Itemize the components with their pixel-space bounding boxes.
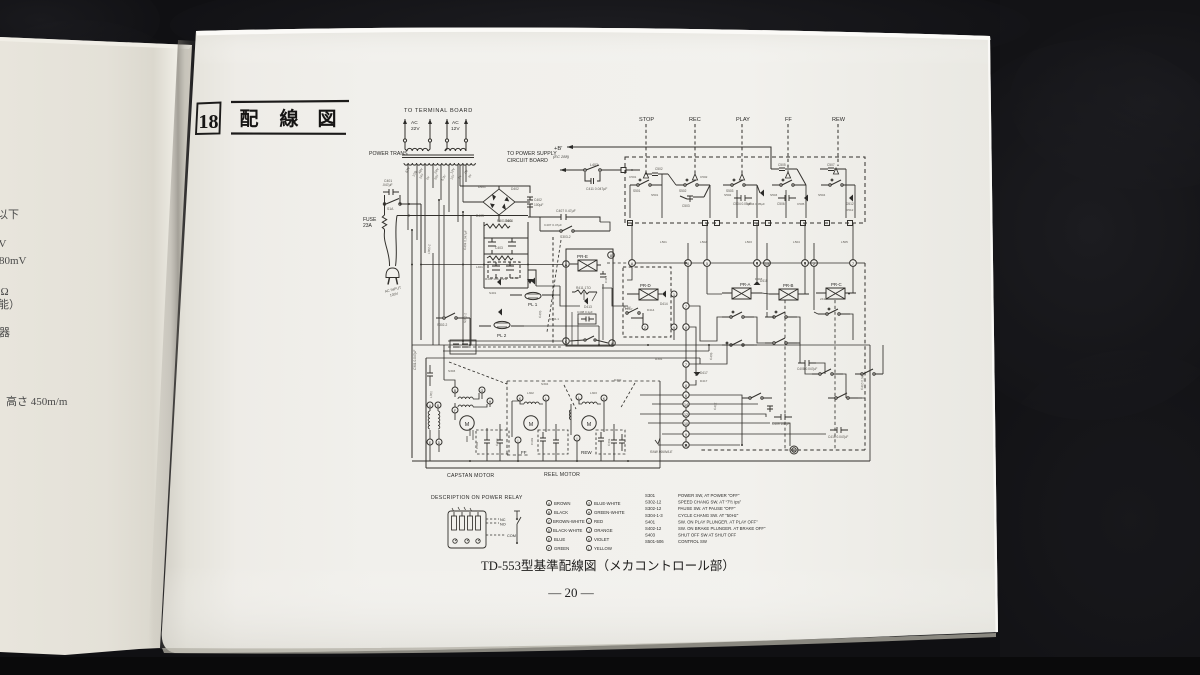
svg-text:配: 配 (239, 108, 258, 130)
svg-text:S401: S401 (489, 291, 497, 295)
svg-text:I: I (577, 437, 578, 441)
svg-text:C503: C503 (682, 204, 690, 208)
svg-text:7: 7 (685, 305, 687, 309)
svg-text:BLUE: BLUE (554, 537, 565, 542)
svg-text:C301 0.047µF: C301 0.047µF (413, 350, 417, 370)
svg-text:F: F (454, 409, 456, 413)
svg-text:S502: S502 (724, 193, 732, 197)
svg-text:L401: L401 (476, 265, 483, 269)
svg-text:6: 6 (687, 262, 689, 266)
svg-text:D512: D512 (846, 202, 854, 206)
svg-text:BROWN: BROWN (554, 501, 570, 506)
svg-text:SPEED CHANG SW. AT “7½ ips: SPEED CHANG SW. AT “7½ ips” (678, 500, 742, 505)
svg-text:L505: L505 (841, 240, 848, 244)
svg-text:AC: AC (411, 120, 418, 126)
svg-text:REEL MOTOR: REEL MOTOR (544, 472, 580, 478)
svg-text:PL 1: PL 1 (528, 302, 538, 307)
svg-text:8: 8 (610, 254, 612, 258)
svg-text:C505: C505 (778, 163, 786, 167)
svg-text:S503: S503 (770, 193, 778, 197)
svg-text:能）: 能） (0, 297, 20, 311)
svg-text:S402-12: S402-12 (645, 526, 662, 531)
svg-text:C502: C502 (700, 175, 708, 179)
svg-text:PAUSE SW. AT PAUSE “OFF”: PAUSE SW. AT PAUSE “OFF” (678, 506, 736, 511)
svg-text:9: 9 (673, 326, 675, 330)
svg-text:C407 0.47µF: C407 0.47µF (544, 223, 562, 227)
svg-text:PR-E: PR-E (577, 254, 588, 259)
svg-text:mV: mV (0, 238, 7, 250)
svg-text:5: 5 (706, 262, 708, 266)
svg-text:D407: D407 (512, 276, 520, 280)
svg-text:D402: D402 (511, 187, 519, 191)
svg-text:S301: S301 (645, 493, 656, 498)
svg-text:D302: D302 (614, 378, 622, 382)
svg-text:D417: D417 (700, 371, 708, 375)
svg-text:S1A: S1A (387, 207, 394, 211)
svg-text:C501: C501 (629, 175, 637, 179)
svg-text:G: G (481, 389, 484, 393)
svg-text:— 20 —: — 20 — (547, 585, 595, 600)
svg-text:S504: S504 (818, 193, 826, 197)
svg-text:図: 図 (317, 108, 336, 130)
svg-text:10: 10 (684, 422, 688, 426)
svg-text:D413: D413 (584, 305, 592, 309)
svg-text:8: 8 (685, 384, 687, 388)
svg-text:NO: NO (500, 523, 506, 527)
svg-text:SHUT OFF SW AT SHUT OFF: SHUT OFF SW AT SHUT OFF (678, 533, 737, 538)
svg-text:YELLOW: YELLOW (594, 546, 613, 551)
svg-text:C413: C413 (604, 275, 608, 283)
svg-text:PLAY: PLAY (625, 307, 633, 311)
svg-text:L: L (588, 547, 590, 551)
svg-text:POWER TRANS: POWER TRANS (369, 151, 408, 157)
svg-text:S302-12: S302-12 (645, 506, 662, 511)
svg-text:C405: C405 (538, 310, 542, 318)
svg-text:S501: S501 (651, 193, 659, 197)
svg-text:C302: C302 (475, 441, 479, 449)
svg-text:C506: C506 (777, 202, 785, 206)
svg-text:L: L (578, 396, 580, 400)
svg-text:R411 17Ω: R411 17Ω (576, 286, 591, 290)
svg-text:C304: C304 (607, 438, 611, 446)
svg-text:18: 18 (199, 111, 219, 133)
svg-text:S304: S304 (541, 382, 549, 386)
svg-text:.047µF: .047µF (382, 183, 393, 187)
svg-text:S501: S501 (633, 189, 641, 193)
svg-text:DESCRIPTION ON POWER RELAY: DESCRIPTION ON POWER RELAY (431, 495, 523, 501)
svg-text:S303-2: S303-2 (560, 235, 571, 239)
svg-text:C402: C402 (534, 198, 542, 202)
svg-text:C407 0.47µF: C407 0.47µF (556, 209, 576, 213)
svg-text:12V: 12V (451, 126, 460, 132)
svg-text:R301: R301 (655, 357, 663, 361)
svg-text:FF: FF (521, 450, 527, 455)
svg-text:線: 線 (279, 107, 298, 130)
svg-text:C410 0.047: C410 0.047 (860, 374, 865, 390)
svg-text:I: I (518, 439, 519, 443)
svg-text:S303: S303 (448, 369, 456, 373)
svg-text:C303: C303 (530, 437, 534, 445)
svg-text:+B′: +B′ (554, 146, 562, 152)
svg-text:R404 100–1/2W: R404 100–1/2W (485, 277, 507, 281)
svg-text:D415: D415 (755, 277, 763, 281)
svg-text:22V: 22V (411, 126, 420, 132)
svg-text:REW: REW (832, 117, 846, 123)
svg-text:STOP: STOP (639, 117, 654, 123)
svg-text:REC: REC (689, 117, 701, 123)
svg-text:6: 6 (685, 394, 687, 398)
svg-text:15: 15 (765, 262, 769, 266)
svg-text:S302-2: S302-2 (437, 323, 448, 327)
svg-text:S502: S502 (679, 189, 687, 193)
svg-text:以下: 以下 (0, 209, 19, 221)
svg-text:POWER SW, AT POWER “OFF”: POWER SW, AT POWER “OFF” (678, 493, 740, 498)
svg-text:L502: L502 (700, 240, 707, 244)
svg-text:23A: 23A (363, 223, 373, 229)
svg-text:D403: D403 (476, 214, 484, 218)
svg-text:C406: C406 (709, 352, 713, 360)
svg-text:高さ 450m/m: 高さ 450m/m (6, 394, 68, 408)
svg-text:C410 0.047µF: C410 0.047µF (828, 435, 848, 439)
svg-text:S302-12: S302-12 (645, 500, 662, 505)
svg-text:S501-506: S501-506 (645, 539, 664, 544)
svg-text:CIRCUIT BOARD: CIRCUIT BOARD (507, 158, 548, 164)
svg-text:SW. ON BRAKE PLUNGER. A: SW. ON BRAKE PLUNGER. AT BRAKE OFF” (678, 526, 766, 531)
svg-text:J: J (588, 529, 590, 533)
svg-text:RAW MAIN/LE: RAW MAIN/LE (650, 450, 673, 454)
svg-text:L: L (545, 397, 547, 401)
svg-text:PR-C: PR-C (831, 282, 842, 287)
svg-text:2411: 2411 (820, 297, 827, 301)
svg-text:TO TERMINAL BOARD: TO TERMINAL BOARD (404, 108, 473, 114)
svg-text:C507: C507 (827, 163, 835, 167)
svg-text:C505: C505 (797, 202, 805, 206)
svg-text:12: 12 (684, 413, 688, 417)
svg-text:BROWN-WHITE: BROWN-WHITE (553, 519, 585, 524)
svg-text:D417: D417 (700, 379, 708, 383)
svg-text:COM: COM (507, 534, 516, 538)
svg-text:1: 1 (673, 293, 675, 297)
svg-text:R401 56Ω: R401 56Ω (497, 219, 512, 223)
svg-text:Ω: Ω (1, 286, 9, 298)
svg-text:C502: C502 (655, 167, 663, 171)
svg-text:C303: C303 (495, 438, 499, 446)
svg-text:REW: REW (581, 450, 592, 455)
svg-text:I: I (589, 520, 590, 524)
svg-text:2: 2 (813, 262, 815, 266)
svg-text:9: 9 (685, 433, 687, 437)
svg-text:PR-D: PR-D (640, 283, 651, 288)
svg-text:CAPSTAN MOTOR: CAPSTAN MOTOR (447, 473, 494, 479)
svg-text:PR-B: PR-B (783, 283, 794, 288)
svg-text:7: 7 (685, 363, 687, 367)
svg-text:GREEN: GREEN (554, 546, 569, 551)
svg-text:GREEN-WHITE: GREEN-WHITE (594, 510, 625, 515)
svg-text:L303: L303 (590, 391, 597, 395)
svg-text:C408 0.047µF: C408 0.047µF (797, 367, 817, 371)
svg-text:S401: S401 (645, 519, 656, 524)
svg-text:8: 8 (685, 326, 687, 330)
svg-text:80mV: 80mV (0, 255, 27, 267)
svg-text:PL 2: PL 2 (497, 333, 507, 338)
svg-text:PR-A: PR-A (740, 282, 751, 287)
svg-text:M: M (465, 422, 470, 428)
svg-text:14: 14 (684, 403, 688, 407)
svg-text:TO POWER SUPPLY: TO POWER SUPPLY (507, 151, 557, 157)
svg-text:G: G (588, 502, 591, 506)
svg-text:7: 7 (852, 262, 854, 266)
svg-text:BLACK: BLACK (554, 510, 568, 515)
svg-text:16: 16 (792, 449, 796, 453)
svg-text:PLAY: PLAY (736, 117, 750, 123)
svg-text:D512: D512 (846, 208, 854, 212)
svg-text:L504: L504 (793, 240, 800, 244)
svg-text:D414: D414 (660, 302, 668, 306)
svg-text:L301: L301 (429, 391, 433, 398)
svg-text:S304-1-3: S304-1-3 (645, 513, 663, 518)
svg-text:FF: FF (785, 117, 792, 123)
svg-text:RED: RED (594, 519, 603, 524)
svg-text:TD-553型基準配線図（メカコントロール部）: TD-553型基準配線図（メカコントロール部） (481, 558, 735, 573)
svg-text:D414: D414 (647, 308, 655, 312)
svg-text:(EC 288): (EC 288) (553, 154, 570, 159)
svg-text:BLACK-WHITE: BLACK-WHITE (553, 528, 582, 533)
svg-text:CONTROL SW: CONTROL SW (678, 539, 708, 544)
svg-text:CYCLE CHANG SW. AT “50Hz”: CYCLE CHANG SW. AT “50Hz” (678, 513, 739, 518)
svg-text:C411 0.047µF: C411 0.047µF (586, 187, 607, 191)
svg-text:F: F (548, 547, 550, 551)
svg-text:C403: C403 (495, 246, 503, 250)
svg-text:C404 0.047µF: C404 0.047µF (463, 230, 468, 250)
svg-text:SW. ON PLAY PLUNGER. AT: SW. ON PLAY PLUNGER. AT PLAY OFF” (678, 519, 758, 524)
svg-text:S403: S403 (645, 533, 656, 538)
svg-text:1302-2: 1302-2 (427, 244, 431, 254)
svg-text:100µF: 100µF (534, 203, 543, 207)
svg-text:M: M (587, 422, 592, 428)
svg-text:NC: NC (500, 518, 506, 522)
svg-text:L503: L503 (745, 240, 752, 244)
svg-text:S302-2: S302-2 (463, 313, 467, 323)
svg-text:2: 2 (644, 326, 646, 330)
svg-text:A: A (631, 262, 634, 266)
svg-text:L501: L501 (660, 240, 667, 244)
svg-text:S402-1: S402-1 (549, 317, 559, 321)
svg-text:C504 0.05µF: C504 0.05µF (747, 202, 765, 206)
svg-text:C408 0.1µF: C408 0.1µF (577, 310, 593, 314)
svg-text:ORANGE: ORANGE (594, 528, 613, 533)
svg-text:M: M (529, 422, 534, 428)
svg-text:器: 器 (0, 326, 10, 339)
svg-text:L302: L302 (527, 391, 534, 395)
svg-text:C412: C412 (713, 402, 717, 410)
svg-text:BLUE-WHITE: BLUE-WHITE (594, 501, 621, 506)
svg-text:AC: AC (452, 120, 459, 126)
svg-text:VIOLET: VIOLET (594, 537, 610, 542)
